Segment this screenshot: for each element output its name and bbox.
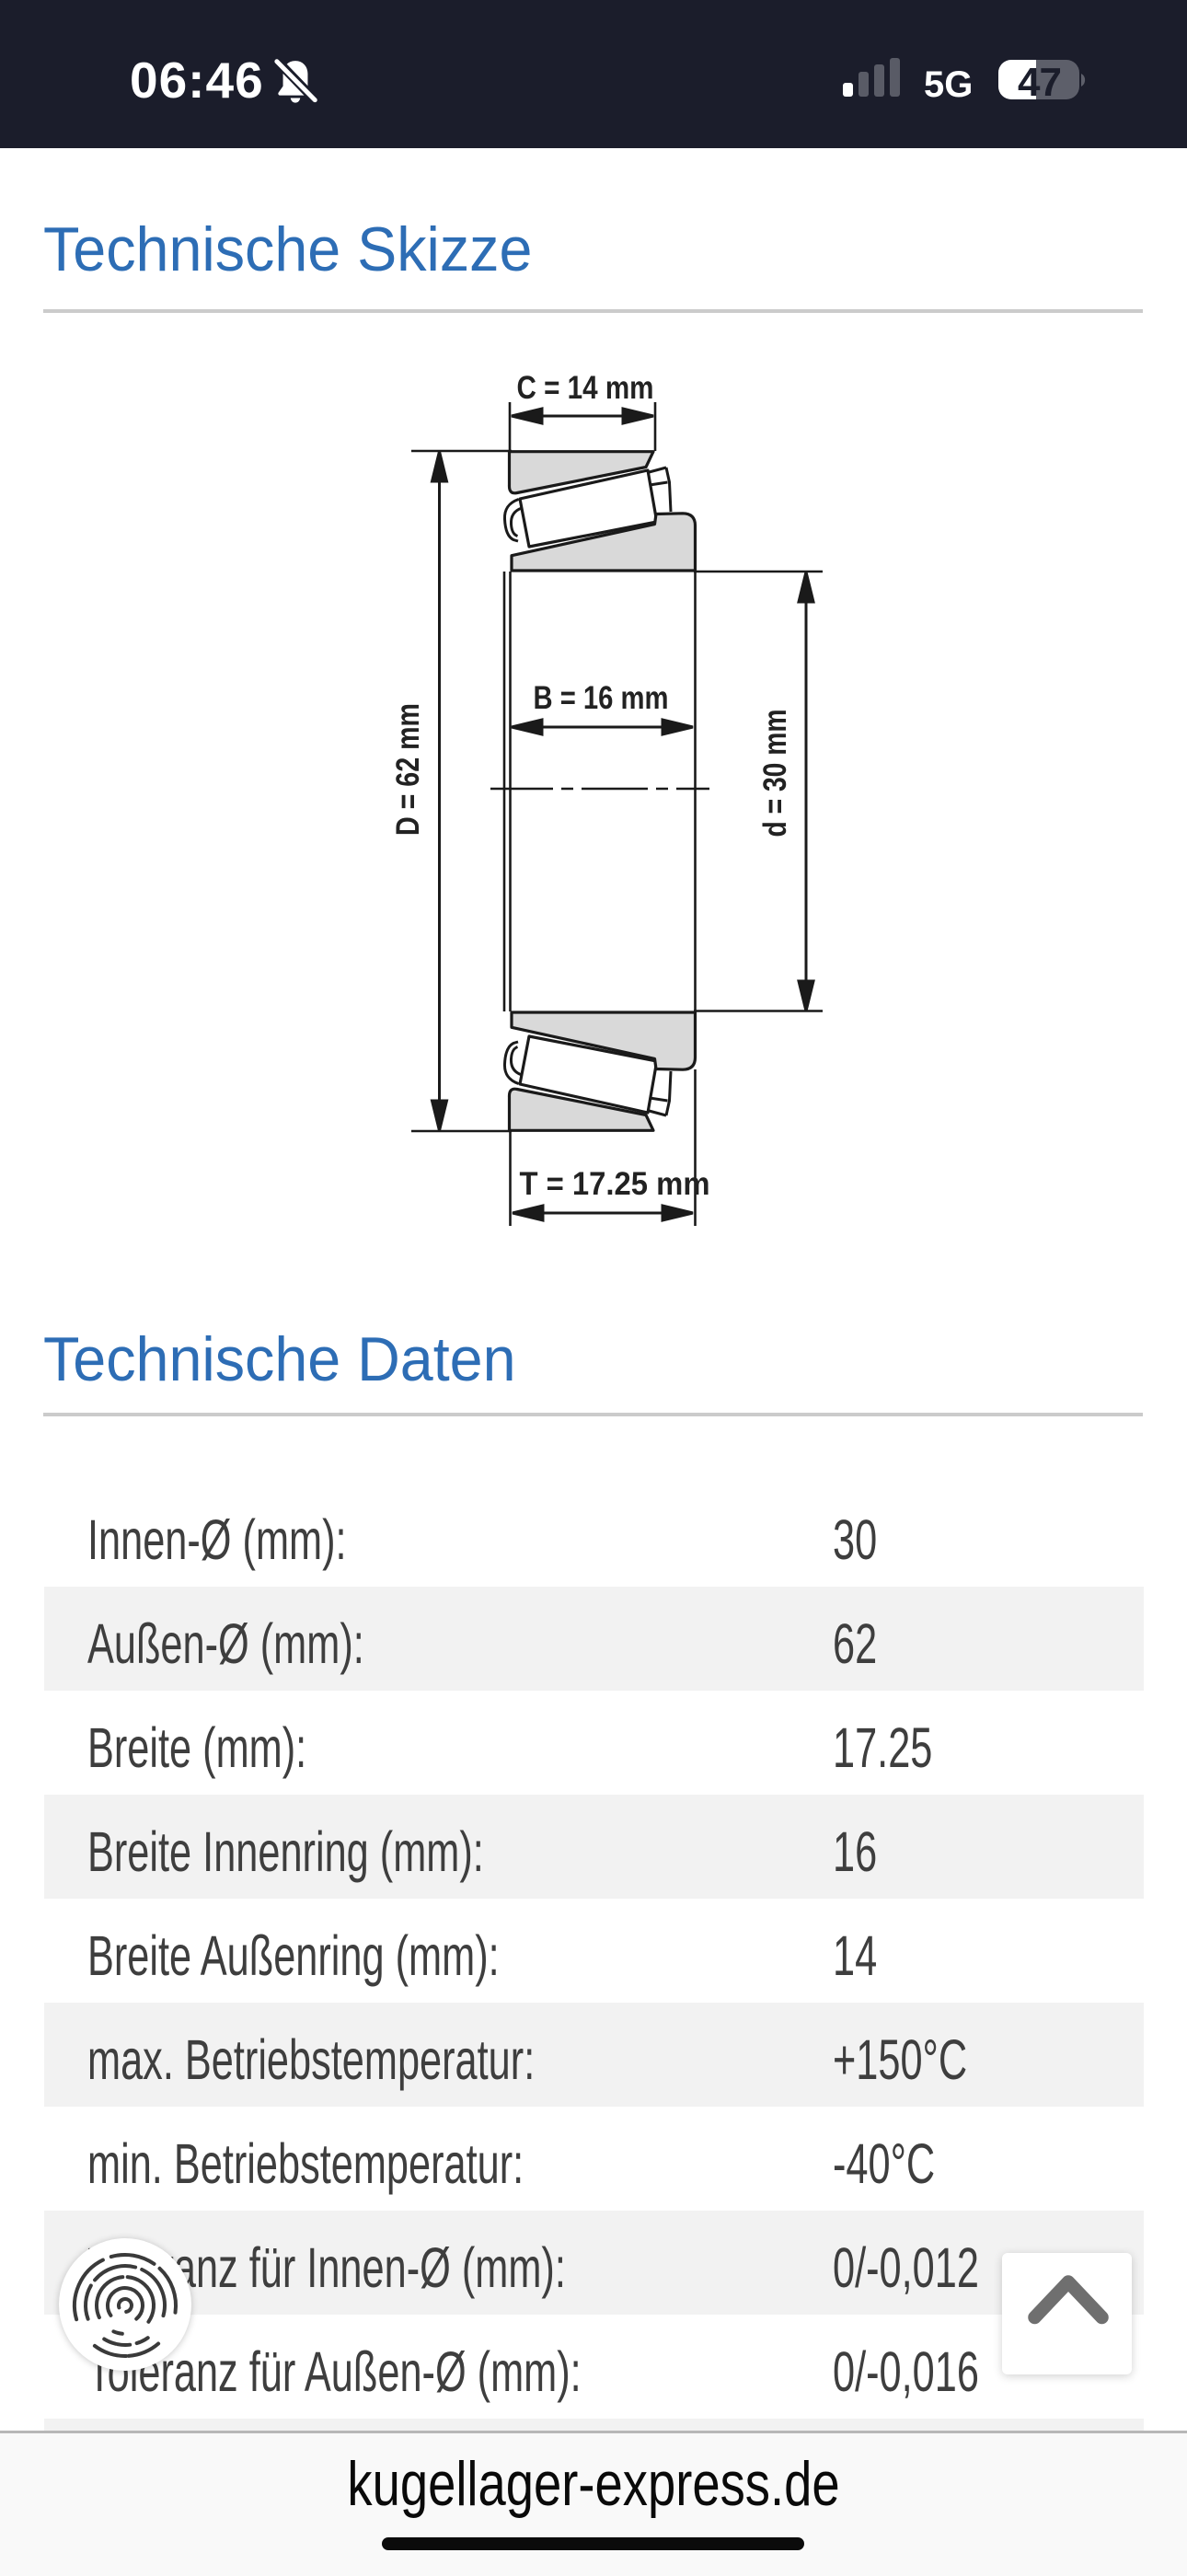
svg-text:C = 14 mm: C = 14 mm (517, 370, 654, 406)
svg-text:T = 17.25 mm: T = 17.25 mm (520, 1166, 710, 1202)
svg-text:B = 16 mm: B = 16 mm (534, 680, 669, 716)
svg-text:D = 62 mm: D = 62 mm (390, 703, 426, 836)
svg-text:47: 47 (1018, 60, 1061, 101)
svg-text:d = 30 mm: d = 30 mm (757, 710, 793, 837)
